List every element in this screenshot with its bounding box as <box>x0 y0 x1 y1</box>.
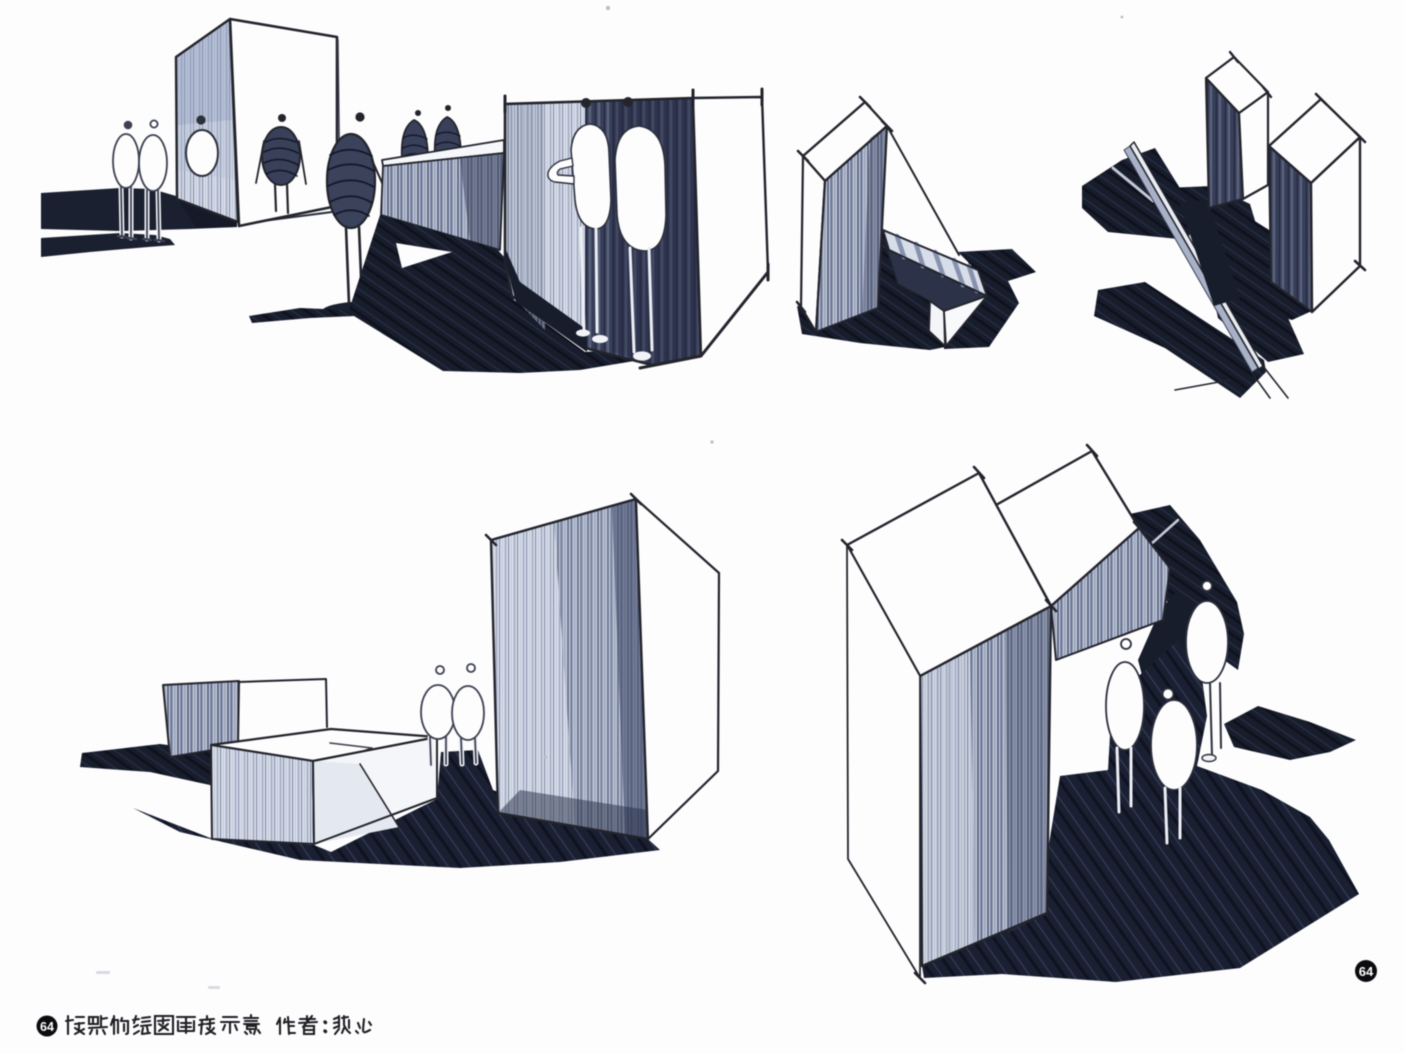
svg-text:64: 64 <box>1359 964 1374 979</box>
svg-text:64: 64 <box>40 1020 54 1034</box>
